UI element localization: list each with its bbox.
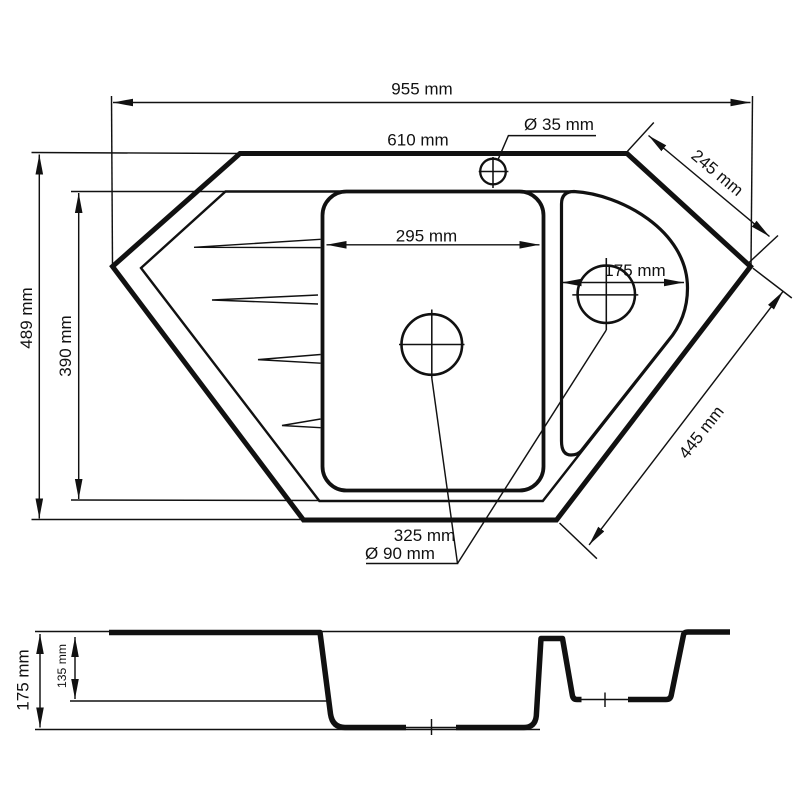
svg-text:955 mm: 955 mm bbox=[391, 80, 452, 99]
svg-text:175 mm: 175 mm bbox=[604, 261, 665, 280]
svg-text:390 mm: 390 mm bbox=[56, 315, 75, 376]
svg-text:489 mm: 489 mm bbox=[17, 287, 36, 348]
svg-text:Ø 35 mm: Ø 35 mm bbox=[524, 115, 594, 134]
svg-text:445 mm: 445 mm bbox=[675, 402, 728, 462]
svg-text:135 mm: 135 mm bbox=[55, 644, 69, 688]
svg-text:245 mm: 245 mm bbox=[688, 146, 747, 200]
svg-text:295 mm: 295 mm bbox=[396, 227, 457, 246]
svg-text:175 mm: 175 mm bbox=[14, 649, 33, 710]
svg-text:325 mm: 325 mm bbox=[394, 526, 455, 545]
svg-text:610 mm: 610 mm bbox=[387, 131, 448, 150]
svg-text:Ø 90 mm: Ø 90 mm bbox=[365, 544, 435, 563]
